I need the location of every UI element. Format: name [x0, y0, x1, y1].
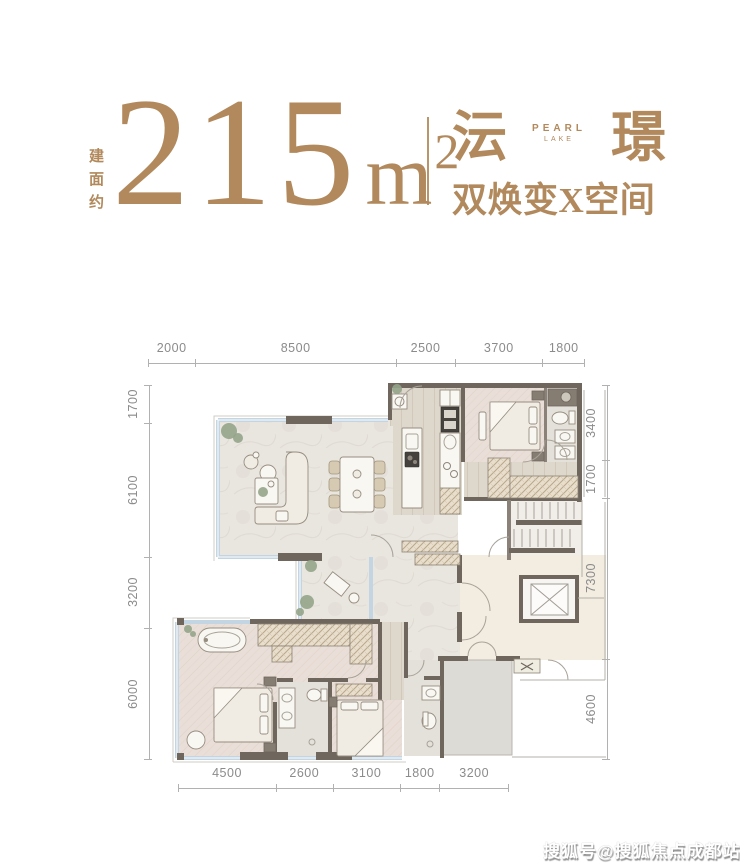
dimension-label: 1700 [584, 464, 598, 494]
kitchen-island [402, 428, 422, 508]
dimension-label: 2000 [148, 341, 195, 355]
dimension-label: 3200 [439, 766, 509, 780]
dimension-label: 7300 [584, 563, 598, 593]
dimension-segment-top: 1800 [542, 341, 585, 367]
dimension-label: 3400 [584, 408, 598, 438]
dining-table [329, 457, 385, 512]
dimension-segment-right: 1700 [584, 460, 610, 498]
dimension-segment-left: 3200 [126, 557, 152, 628]
dimension-label: 6000 [126, 679, 140, 709]
dimension-label: 2600 [276, 766, 333, 780]
dimension-column-left: 1700610032006000 [126, 385, 152, 760]
dimension-segment-right: 7300 [584, 498, 610, 659]
kitchen-cabinets [440, 390, 460, 488]
dimension-segment-left: 6100 [126, 423, 152, 558]
dimension-label: 4500 [178, 766, 276, 780]
dimension-segment-bottom: 2600 [276, 766, 333, 792]
dimension-segment-top: 2500 [396, 341, 455, 367]
bedroom2-bed [329, 697, 383, 756]
dimension-label: 4600 [584, 694, 598, 724]
page: 建面约 215m2 沄 PEARL LAKE 璟 双焕变X空间 [0, 0, 740, 865]
dimension-segment-left: 1700 [126, 385, 152, 423]
dimension-label: 1800 [400, 766, 439, 780]
watermark: 搜狐号@搜狐焦点成都站 [543, 837, 740, 862]
dimension-segment-bottom: 1800 [400, 766, 439, 792]
dimension-segment-bottom: 3100 [333, 766, 401, 792]
dimension-segment-top: 8500 [195, 341, 396, 367]
dimension-label: 6100 [126, 475, 140, 505]
bathtub [198, 628, 246, 652]
dimension-segment-left: 6000 [126, 628, 152, 760]
dimension-label: 3200 [126, 577, 140, 607]
dimension-label: 2500 [396, 341, 455, 355]
dimension-segment-right: 4600 [584, 659, 610, 760]
elevator [521, 577, 577, 621]
dimension-label: 1800 [542, 341, 585, 355]
dimension-segment-right: 3400 [584, 385, 610, 460]
dimension-label: 1700 [126, 389, 140, 419]
dimension-segment-bottom: 3200 [439, 766, 509, 792]
dimension-label: 3700 [455, 341, 542, 355]
dimension-row-top: 20008500250037001800 [148, 341, 585, 367]
dimension-column-right: 3400170073004600 [584, 385, 610, 760]
dimension-segment-top: 2000 [148, 341, 195, 367]
dimension-segment-top: 3700 [455, 341, 542, 367]
dimension-label: 8500 [195, 341, 396, 355]
floor-plan [0, 0, 740, 865]
dimension-row-bottom: 45002600310018003200 [178, 766, 509, 792]
coffee-table [255, 478, 278, 504]
washer [392, 394, 407, 409]
dimension-segment-bottom: 4500 [178, 766, 276, 792]
dimension-label: 3100 [333, 766, 401, 780]
